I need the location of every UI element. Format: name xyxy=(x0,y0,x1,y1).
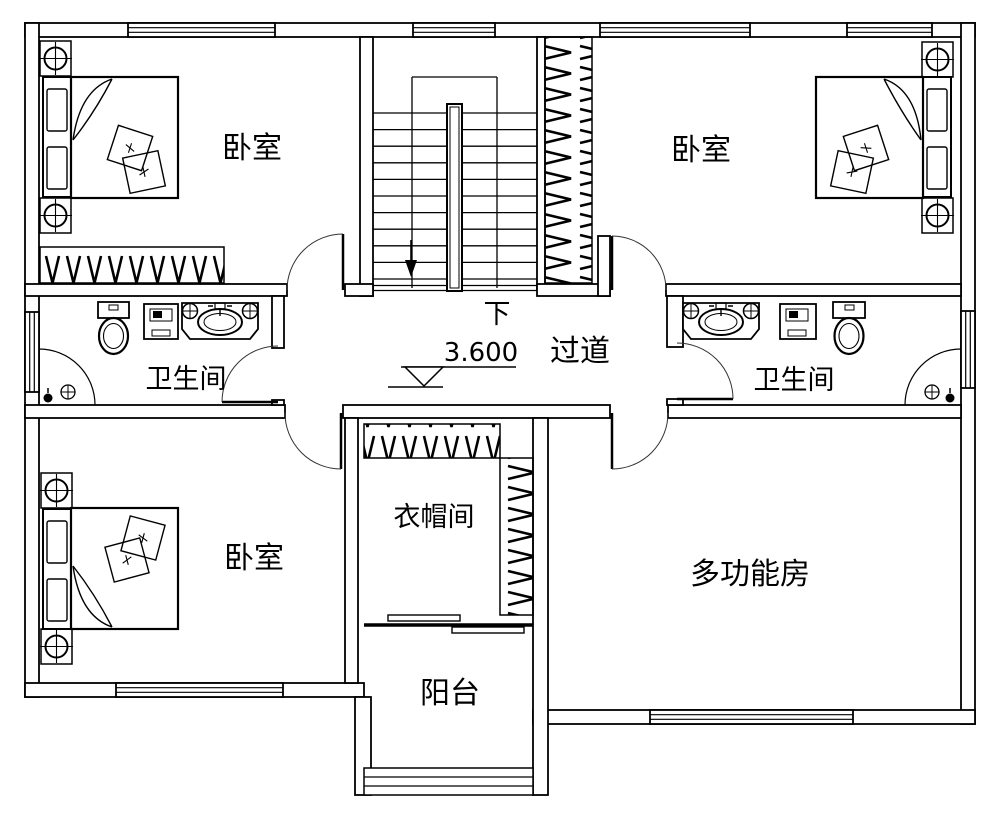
toilet-icon xyxy=(833,302,865,354)
cabinet-icon xyxy=(144,304,178,339)
window-bathroom-left xyxy=(25,312,39,392)
shower-head-icon xyxy=(946,394,955,403)
window-top-stair xyxy=(413,23,495,37)
elevation-marker: 3.600 xyxy=(388,338,518,387)
door-bedroom-top-left xyxy=(287,234,343,290)
window-bedroom-bottom xyxy=(116,683,283,697)
wall-corridor-top-a xyxy=(25,284,287,296)
room-label-balcony: 阳台 xyxy=(420,676,480,711)
shower-head-icon xyxy=(44,394,53,403)
wardrobe-strip-bedroom-tl xyxy=(40,247,224,283)
door-bathroom-left xyxy=(222,346,278,402)
wall-mfr-left xyxy=(533,418,548,795)
balcony-railing xyxy=(364,768,533,795)
column-symbol xyxy=(39,198,72,233)
column-symbol xyxy=(40,629,73,664)
room-label-cloakroom: 衣帽间 xyxy=(394,502,475,533)
window-mfr-bottom xyxy=(650,710,853,724)
toilet-icon xyxy=(98,302,129,354)
room-label-bedroom-top-left: 卧室 xyxy=(222,131,282,166)
wall-bathroom-left-partition xyxy=(272,296,284,348)
shower-area xyxy=(39,349,95,405)
window-top-2 xyxy=(600,23,750,37)
bed-top-right xyxy=(816,77,951,198)
bed-bottom-left xyxy=(43,508,178,629)
room-label-bathroom-left: 卫生间 xyxy=(146,364,227,395)
wall-bedroom-cloakroom xyxy=(345,418,358,683)
wall-stair-left xyxy=(360,37,373,296)
door-bedroom-top-right xyxy=(612,236,666,290)
wardrobe-strip-bedroom-tr xyxy=(545,37,592,283)
wardrobe-strip-cloakroom-top xyxy=(364,424,500,458)
stair-handrail xyxy=(447,104,462,291)
door-bathroom-right xyxy=(677,343,733,399)
elevation-value: 3.600 xyxy=(444,338,518,368)
room-label-multi-function: 多功能房 xyxy=(690,557,810,592)
sink-icon xyxy=(683,303,759,339)
column-symbol xyxy=(40,473,73,508)
stair-direction-label: 下 xyxy=(484,299,511,330)
window-bathroom-right xyxy=(961,311,975,388)
floor-plan-page: 3.600 卧室 卧室 卧室 卫生间 卫生间 过道 衣帽间 阳台 多功能房 下 xyxy=(0,0,1000,815)
door-mfr xyxy=(612,413,668,469)
column-symbol xyxy=(921,42,954,77)
sink-icon xyxy=(182,303,258,339)
wall-corridor-top-d xyxy=(666,284,961,296)
wall-stair-right xyxy=(537,37,545,290)
staircase xyxy=(373,77,537,291)
cabinet-icon xyxy=(780,304,816,339)
floor-plan-drawing: 3.600 卧室 卧室 卧室 卫生间 卫生间 过道 衣帽间 阳台 多功能房 下 xyxy=(0,0,1000,815)
room-label-bathroom-right: 卫生间 xyxy=(754,365,835,396)
wall-corridor-top-b xyxy=(345,284,373,296)
wall-bathroom-right-partition xyxy=(667,296,683,347)
door-bedroom-bottom-left xyxy=(285,413,341,469)
wall-corridor-bottom-a xyxy=(25,405,285,418)
wall-bedroom-tr-stub xyxy=(598,236,610,296)
column-symbol xyxy=(39,41,72,76)
wardrobe-strip-cloakroom-right xyxy=(500,458,533,615)
shower-area xyxy=(905,349,961,405)
room-label-bedroom-bottom-left: 卧室 xyxy=(224,541,284,576)
room-label-corridor: 过道 xyxy=(550,334,610,369)
window-top-3 xyxy=(847,23,932,37)
balcony-sliding-door xyxy=(364,615,533,633)
window-top-1 xyxy=(128,23,275,37)
wall-corridor-bottom-b xyxy=(343,405,610,418)
wall-corridor-bottom-c xyxy=(668,405,961,418)
room-label-bedroom-top-right: 卧室 xyxy=(671,133,731,168)
column-symbol xyxy=(921,198,954,233)
bed-top-left xyxy=(43,77,178,198)
